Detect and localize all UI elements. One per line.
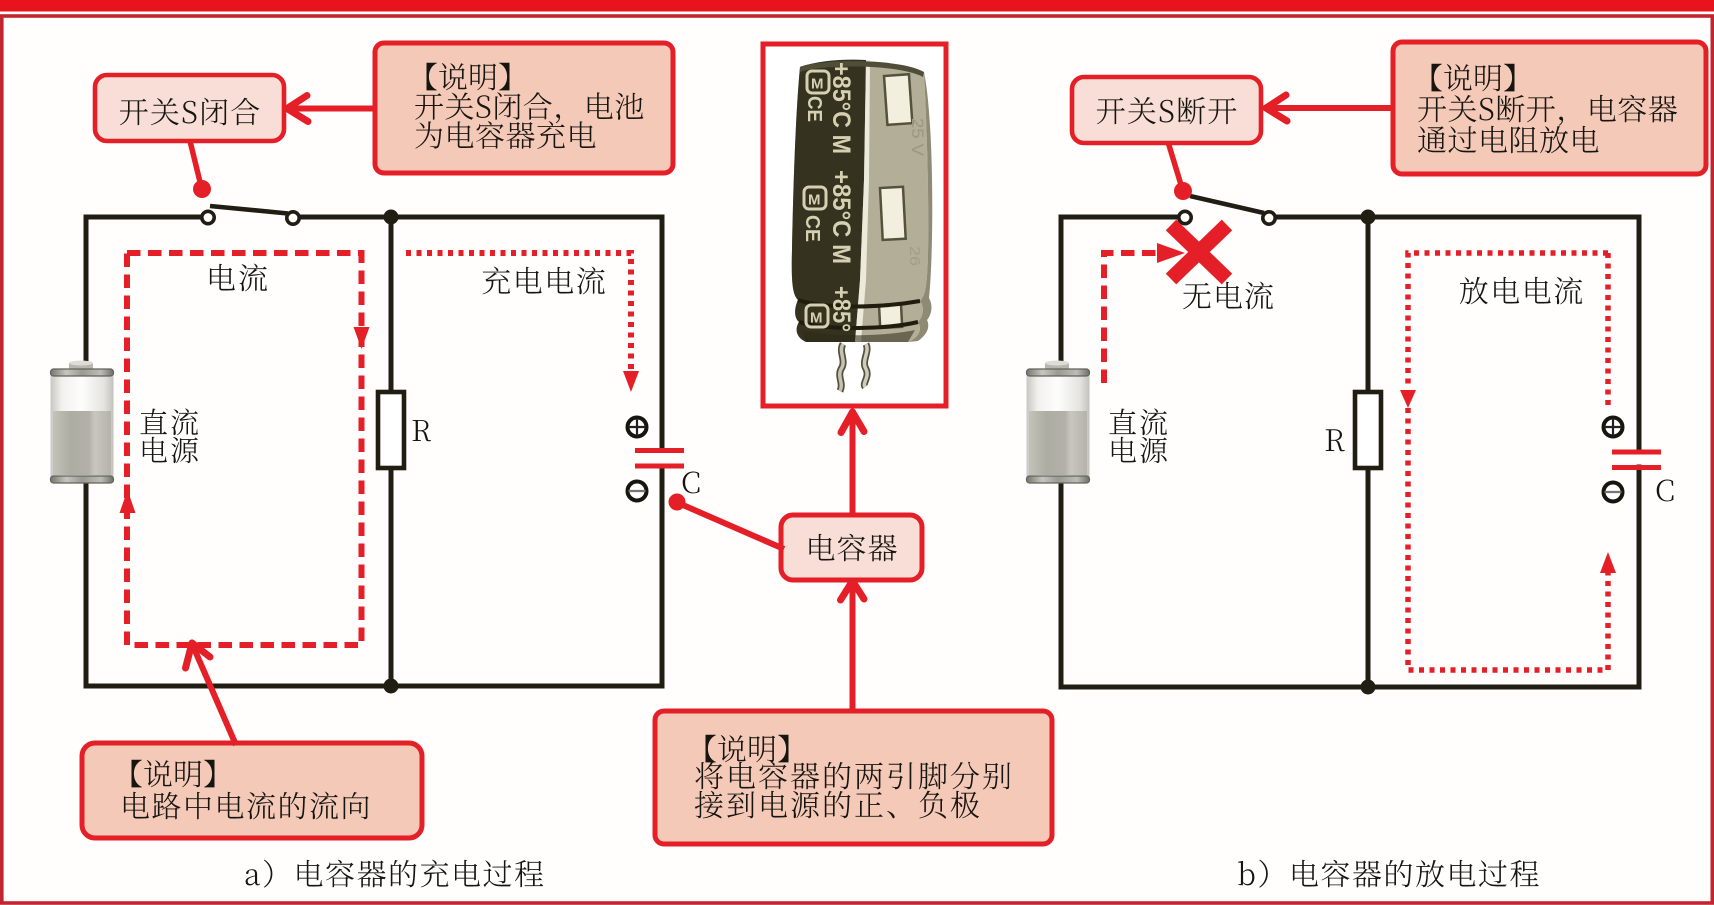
svg-text:M: M bbox=[811, 76, 824, 93]
svg-text:25 V: 25 V bbox=[908, 118, 927, 157]
svg-text:+85°C M: +85°C M bbox=[827, 170, 855, 264]
svg-text:M: M bbox=[808, 192, 821, 209]
svg-text:+85°C M: +85°C M bbox=[827, 62, 855, 154]
svg-text:CE: CE bbox=[801, 215, 823, 242]
svg-text:+85°: +85° bbox=[827, 286, 855, 332]
svg-text:M: M bbox=[810, 310, 823, 327]
svg-text:26: 26 bbox=[906, 246, 923, 266]
svg-text:CE: CE bbox=[803, 96, 825, 122]
